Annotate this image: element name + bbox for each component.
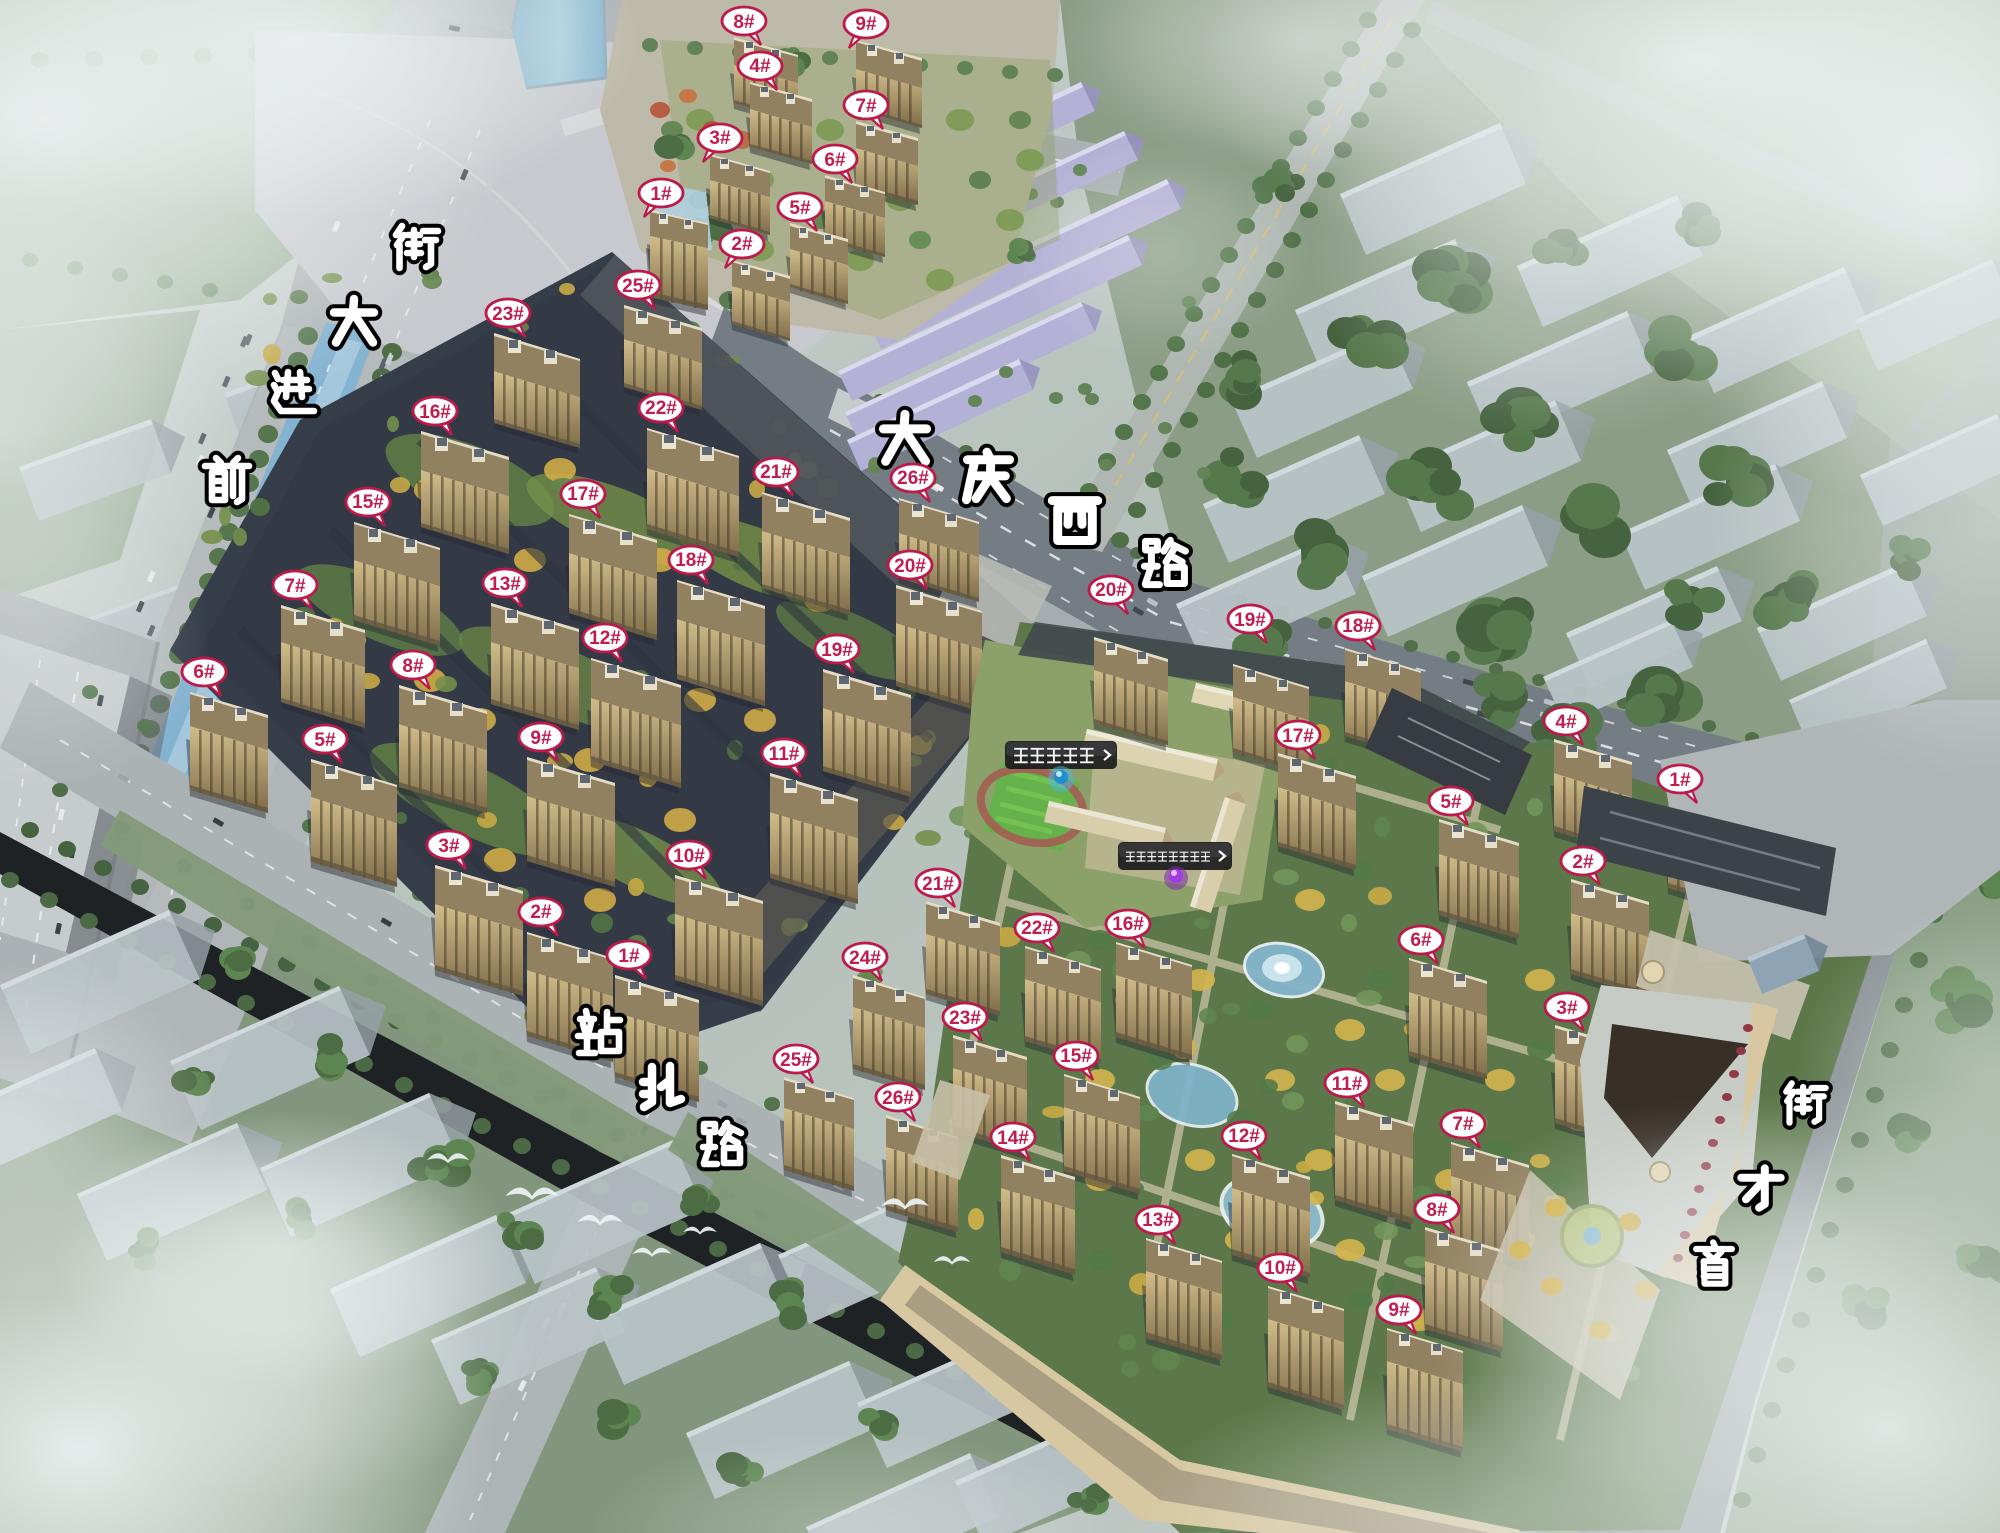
svg-text:20#: 20# <box>894 556 926 577</box>
svg-text:25#: 25# <box>622 276 654 297</box>
svg-text:11#: 11# <box>1332 1074 1363 1095</box>
svg-text:5#: 5# <box>314 730 336 751</box>
svg-text:18#: 18# <box>1342 616 1374 637</box>
svg-text:14#: 14# <box>997 1128 1029 1149</box>
svg-text:5#: 5# <box>789 198 811 219</box>
svg-text:13#: 13# <box>1142 1210 1174 1231</box>
svg-text:21#: 21# <box>922 874 954 895</box>
svg-text:4#: 4# <box>749 56 771 77</box>
svg-text:7#: 7# <box>855 96 877 117</box>
svg-text:13#: 13# <box>489 574 521 595</box>
svg-text:23#: 23# <box>949 1008 981 1029</box>
svg-text:1#: 1# <box>618 946 640 967</box>
svg-text:12#: 12# <box>589 628 621 649</box>
svg-text:12#: 12# <box>1228 1126 1260 1147</box>
svg-text:7#: 7# <box>1452 1114 1474 1135</box>
svg-text:19#: 19# <box>1234 610 1266 631</box>
svg-text:18#: 18# <box>675 550 707 571</box>
svg-text:8#: 8# <box>1426 1200 1448 1221</box>
svg-text:22#: 22# <box>1021 918 1053 939</box>
svg-text:3#: 3# <box>1556 998 1578 1019</box>
svg-text:2#: 2# <box>1572 852 1594 873</box>
svg-text:3#: 3# <box>438 836 460 857</box>
svg-text:20#: 20# <box>1095 580 1127 601</box>
svg-text:11#: 11# <box>769 744 800 765</box>
svg-text:23#: 23# <box>492 304 524 325</box>
svg-text:5#: 5# <box>1440 792 1462 813</box>
svg-text:17#: 17# <box>1282 726 1314 747</box>
svg-text:8#: 8# <box>733 12 755 33</box>
svg-text:8#: 8# <box>402 656 424 677</box>
svg-text:10#: 10# <box>673 846 705 867</box>
svg-text:21#: 21# <box>760 462 792 483</box>
svg-text:4#: 4# <box>1555 712 1577 733</box>
svg-text:19#: 19# <box>821 640 853 661</box>
svg-text:24#: 24# <box>849 948 881 969</box>
svg-text:17#: 17# <box>567 484 599 505</box>
svg-text:1#: 1# <box>1669 770 1691 791</box>
svg-text:6#: 6# <box>1410 930 1432 951</box>
svg-text:16#: 16# <box>419 402 451 423</box>
svg-text:6#: 6# <box>824 150 846 171</box>
svg-text:7#: 7# <box>284 576 306 597</box>
svg-text:6#: 6# <box>193 662 215 683</box>
svg-text:22#: 22# <box>645 398 677 419</box>
svg-text:16#: 16# <box>1112 914 1144 935</box>
svg-text:26#: 26# <box>897 468 929 489</box>
svg-text:9#: 9# <box>1388 1300 1410 1321</box>
svg-text:15#: 15# <box>352 492 384 513</box>
svg-text:15#: 15# <box>1060 1046 1092 1067</box>
svg-text:2#: 2# <box>731 234 753 255</box>
svg-text:9#: 9# <box>855 14 877 35</box>
svg-text:3#: 3# <box>709 128 731 149</box>
svg-text:9#: 9# <box>530 728 552 749</box>
svg-text:2#: 2# <box>530 902 552 923</box>
svg-text:10#: 10# <box>1264 1258 1296 1279</box>
svg-text:25#: 25# <box>780 1050 812 1071</box>
svg-text:1#: 1# <box>650 184 672 205</box>
svg-text:26#: 26# <box>882 1088 914 1109</box>
